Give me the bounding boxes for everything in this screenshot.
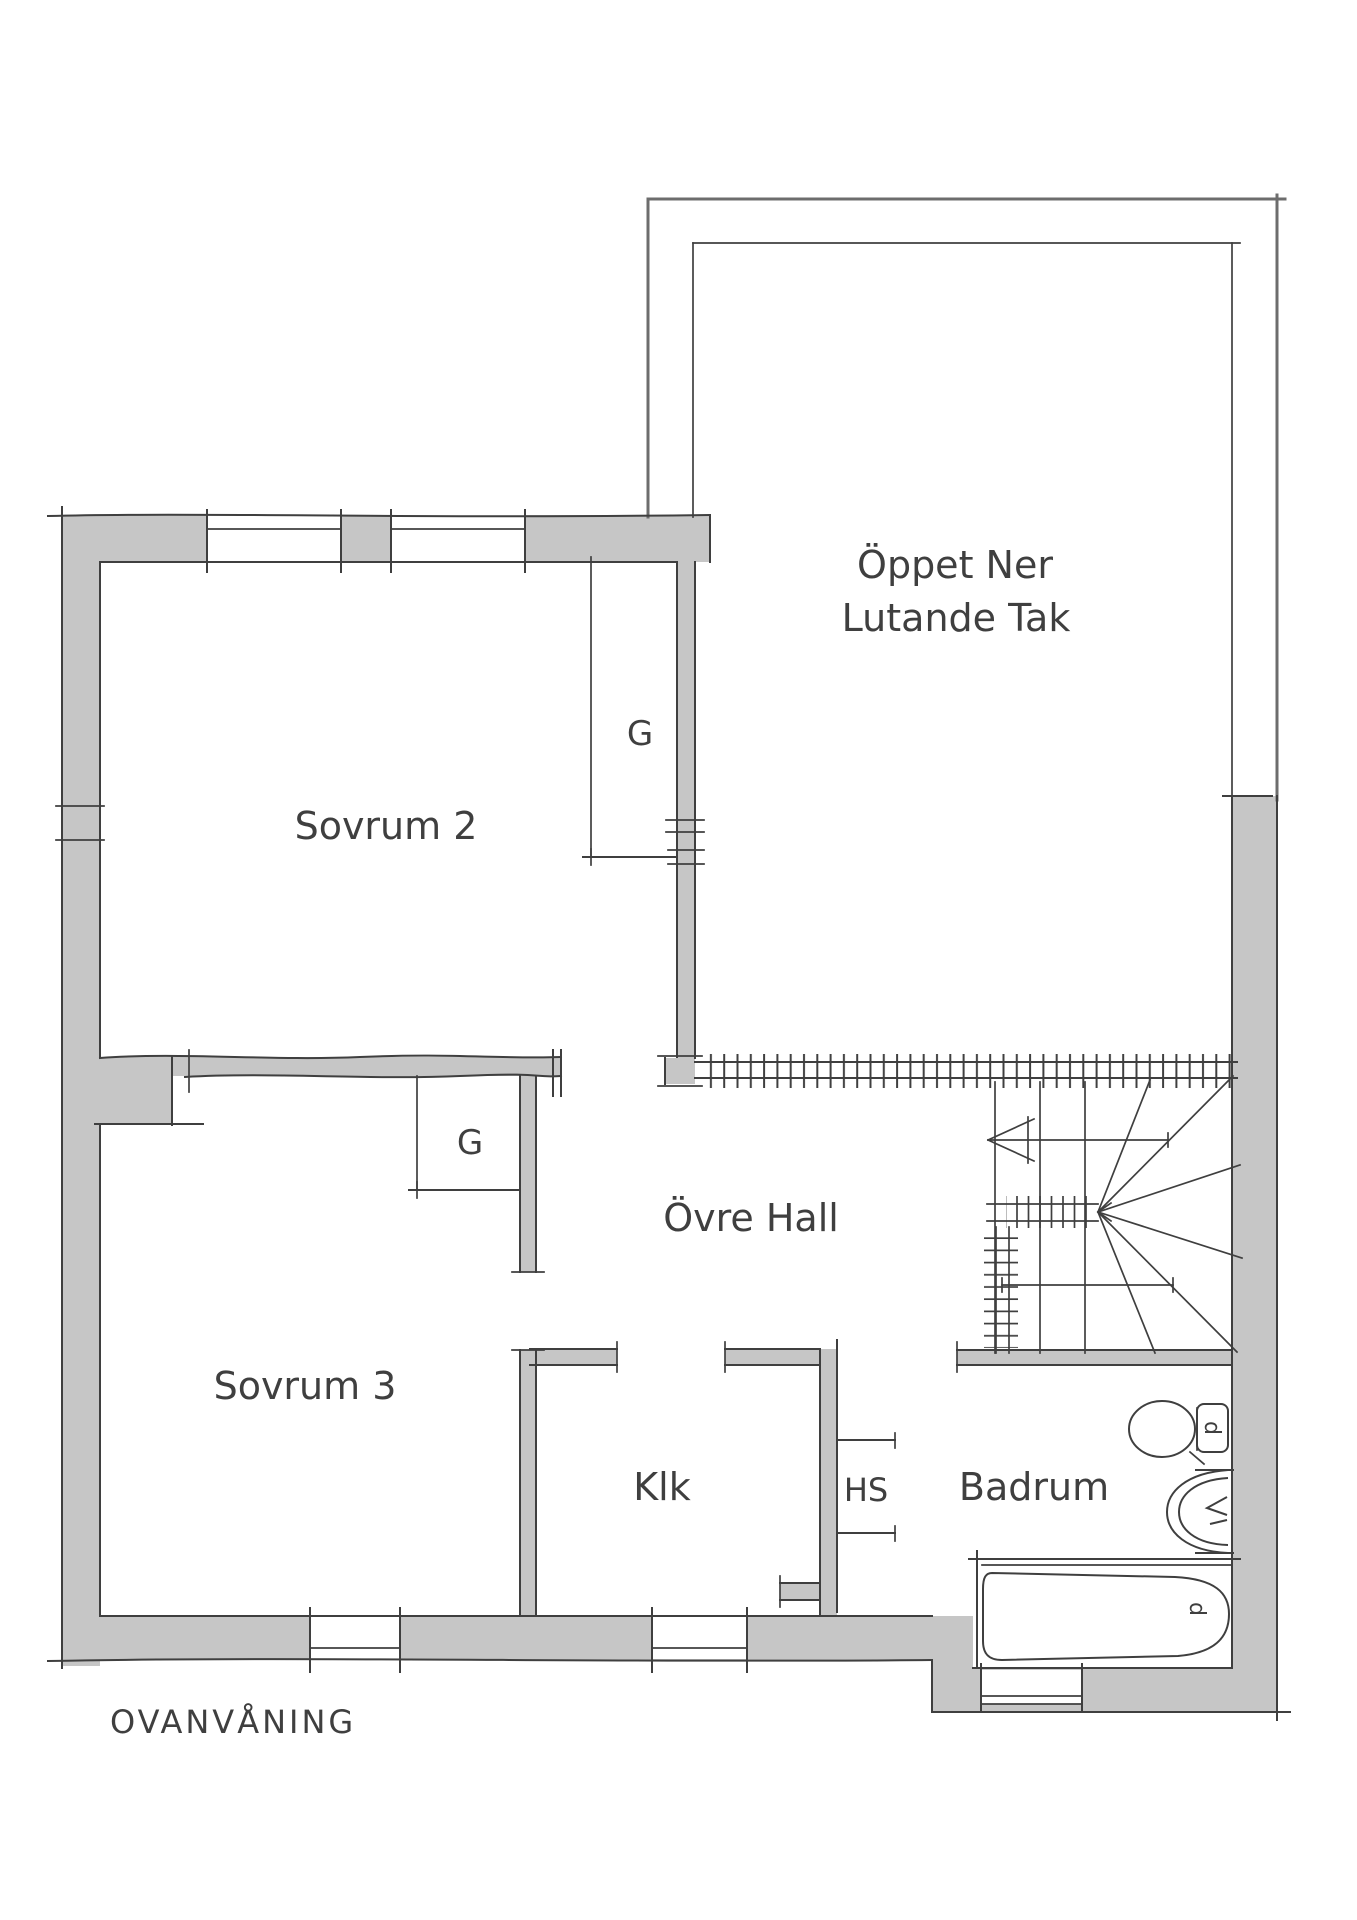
- bathtub-shape: [983, 1573, 1229, 1660]
- right-exterior-wall: [1232, 796, 1277, 1712]
- stairs: [984, 1076, 1242, 1353]
- top-wall-right: [525, 515, 710, 562]
- wardrobe-label-g2: G: [457, 1123, 483, 1163]
- stair-railing: [695, 1054, 1237, 1088]
- labels: Sovrum 2 Sovrum 3 Övre Hall Klk HS Badru…: [110, 543, 1109, 1741]
- g2-closet-right-wall: [520, 1076, 536, 1272]
- open-area-boundary: [648, 195, 1285, 800]
- railing-hatch: [700, 1054, 1232, 1088]
- klk-top-wall-right: [725, 1349, 820, 1365]
- toilet-drain-label: d: [1199, 1421, 1224, 1435]
- window-gap: [981, 1670, 1082, 1704]
- wall-pier: [100, 1057, 172, 1125]
- window-gap: [652, 1617, 747, 1659]
- stair-treads-upper: [1006, 1196, 1094, 1228]
- left-exterior-wall: [62, 515, 100, 1666]
- room-label-hs: HS: [844, 1471, 888, 1509]
- wardrobe-label-g1: G: [627, 714, 653, 754]
- bathtub: d: [969, 1551, 1240, 1668]
- room-label-badrum: Badrum: [959, 1465, 1109, 1509]
- window-gap: [207, 515, 341, 562]
- walls: [62, 515, 1277, 1712]
- window-gap: [391, 515, 525, 562]
- open-area-label-line1: Öppet Ner: [857, 543, 1053, 587]
- floor-plan-drawing: d d Sovrum 2 Sovrum 3 Övre Hall Klk HS B…: [0, 0, 1357, 1920]
- wall-outlines: [48, 507, 1290, 1720]
- room-label-sovrum3: Sovrum 3: [214, 1364, 397, 1408]
- sovrum2-right-wall-foot: [665, 1058, 695, 1084]
- klk-corner-stub: [780, 1583, 820, 1600]
- page-title: OVANVÅNING: [110, 1703, 356, 1741]
- bathroom-fixtures: d d: [969, 1401, 1240, 1668]
- top-wall-pier: [341, 515, 391, 562]
- stair-treads-lower: [984, 1230, 1018, 1348]
- bathtub-drain-label: d: [1184, 1602, 1209, 1616]
- room-label-ovre-hall: Övre Hall: [663, 1196, 839, 1240]
- toilet: d: [1129, 1401, 1228, 1464]
- window-gap: [310, 1617, 400, 1659]
- bottom-wall-step: [932, 1616, 973, 1712]
- window-gaps: [207, 515, 1082, 1704]
- open-area-label-line2: Lutande Tak: [842, 596, 1071, 640]
- hall-south-wall: [957, 1350, 1232, 1365]
- stair-winder-fan: [1098, 1076, 1242, 1353]
- toilet-bowl: [1129, 1401, 1195, 1457]
- room-label-klk: Klk: [633, 1465, 690, 1509]
- klk-badrum-divider-wall: [820, 1349, 837, 1616]
- floor-plan: d d Sovrum 2 Sovrum 3 Övre Hall Klk HS B…: [0, 0, 1357, 1920]
- sovrum2-right-wall: [677, 562, 695, 1058]
- bottom-wall-left: [62, 1616, 973, 1660]
- klk-top-wall-left: [530, 1349, 617, 1365]
- klk-left-wall: [520, 1350, 536, 1616]
- room-label-sovrum2: Sovrum 2: [295, 804, 478, 848]
- washbasin: [1167, 1470, 1233, 1553]
